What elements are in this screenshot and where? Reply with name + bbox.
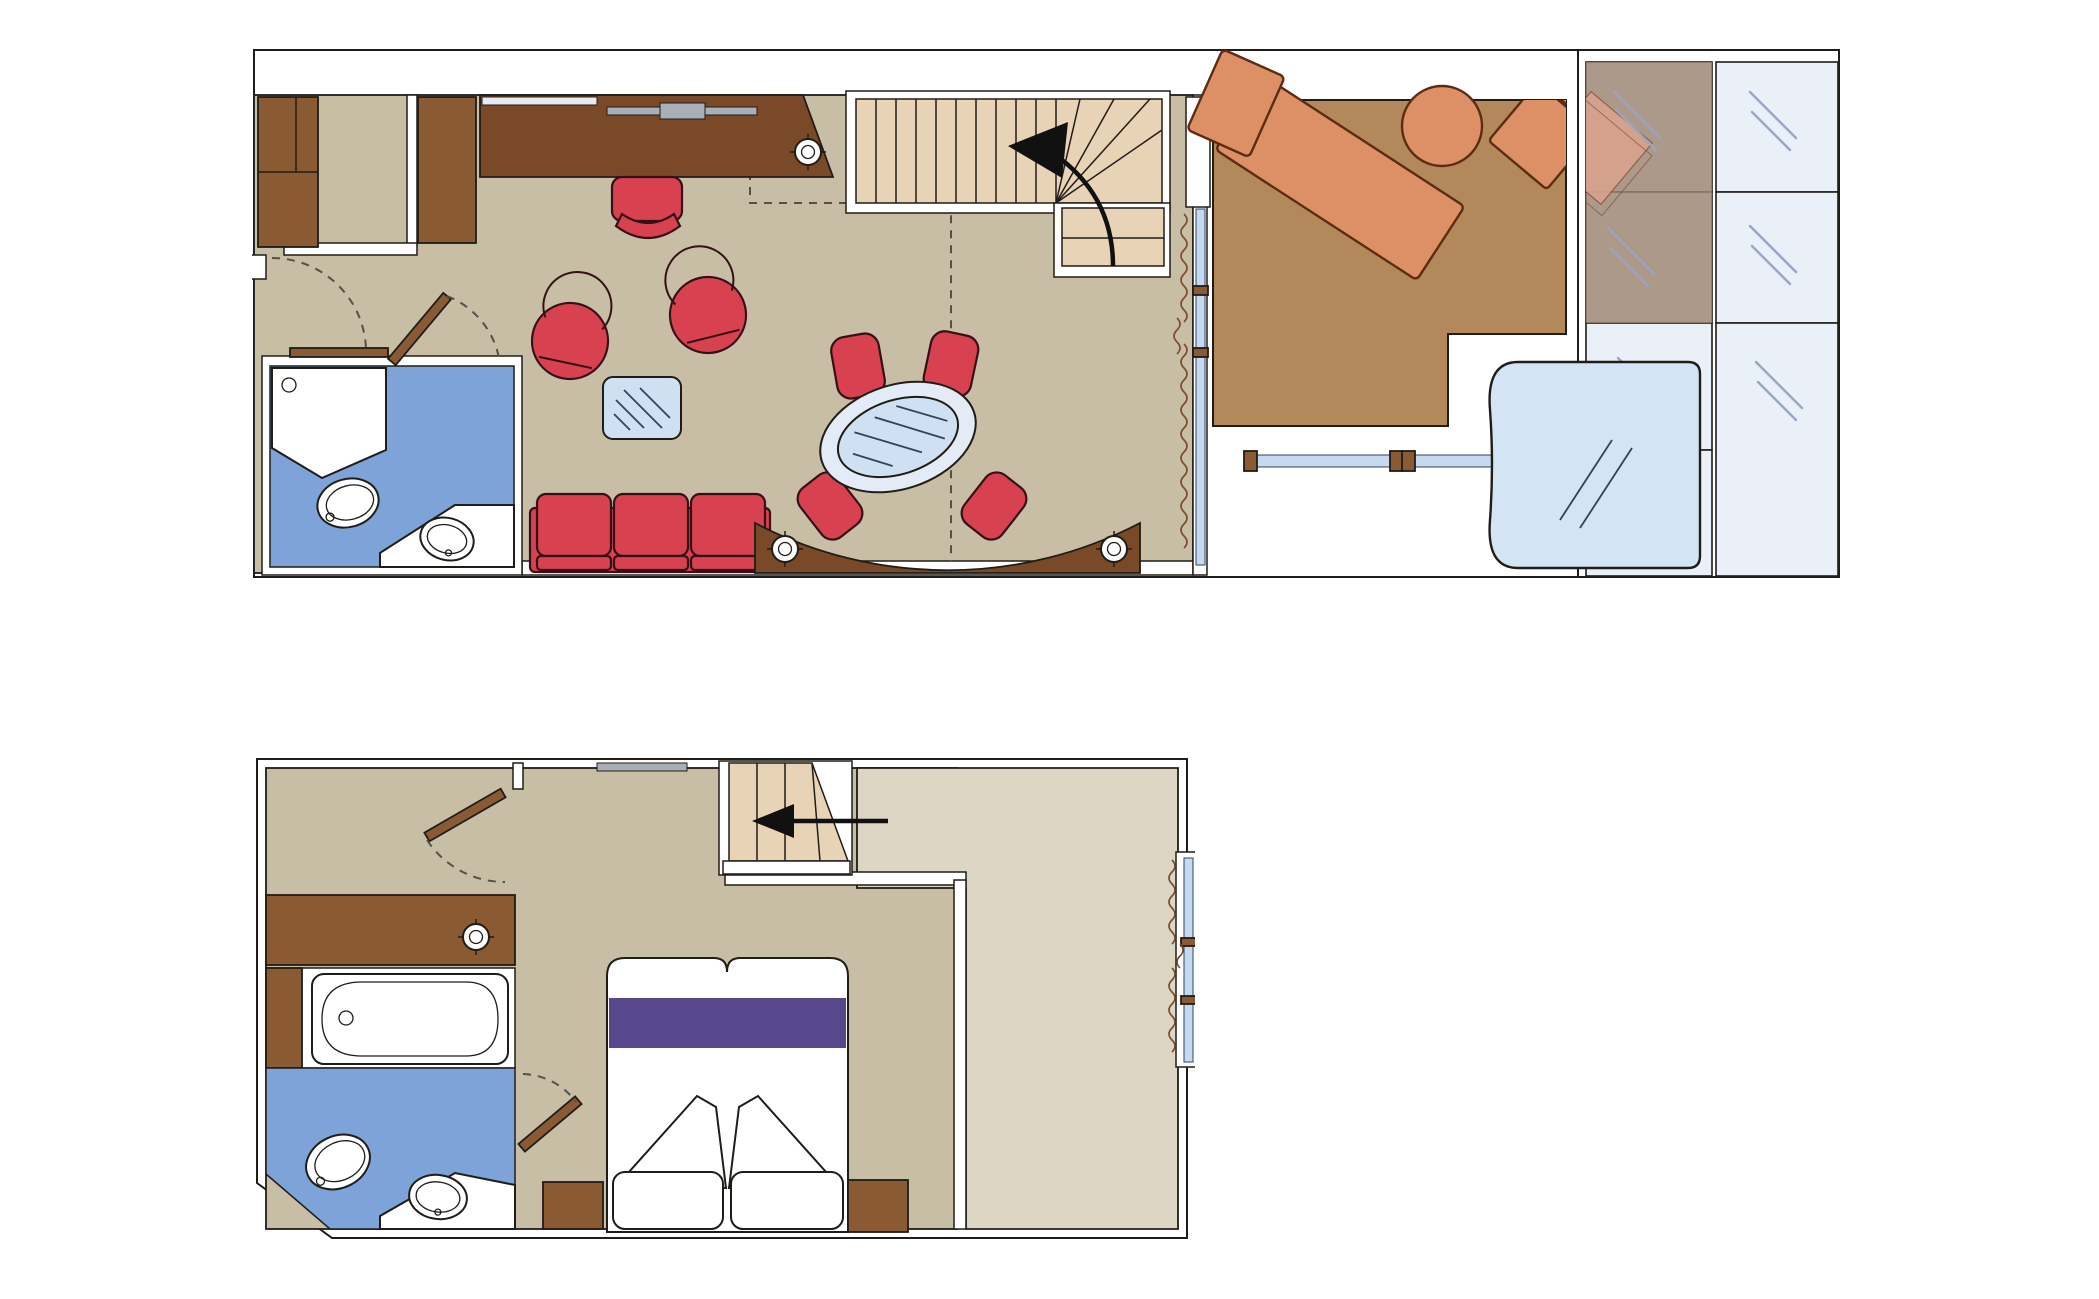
bedroom-right-wall xyxy=(954,880,966,1229)
bed-runner xyxy=(609,998,846,1048)
nightstand xyxy=(543,1182,603,1229)
coffee-table xyxy=(603,377,681,439)
pillow xyxy=(731,1172,843,1229)
sofa xyxy=(530,494,770,572)
shelf xyxy=(290,348,388,357)
nightstand xyxy=(848,1180,908,1232)
closet xyxy=(418,97,476,243)
door-jamb xyxy=(513,763,523,789)
shelf xyxy=(597,763,687,771)
bathtub xyxy=(312,974,508,1064)
desk xyxy=(480,95,833,177)
wardrobe xyxy=(258,97,318,247)
double-bed xyxy=(607,958,848,1232)
vestibule-wall xyxy=(407,95,417,245)
lower-floor-plan xyxy=(255,757,1195,1241)
floor-plan-canvas xyxy=(0,0,2099,1299)
upper-floor-plan xyxy=(252,48,1842,580)
desk-chair xyxy=(612,177,682,238)
round-table xyxy=(1402,86,1482,166)
pillow xyxy=(613,1172,723,1229)
bathtub-room xyxy=(266,968,515,1068)
entry-door-jamb xyxy=(252,255,266,279)
